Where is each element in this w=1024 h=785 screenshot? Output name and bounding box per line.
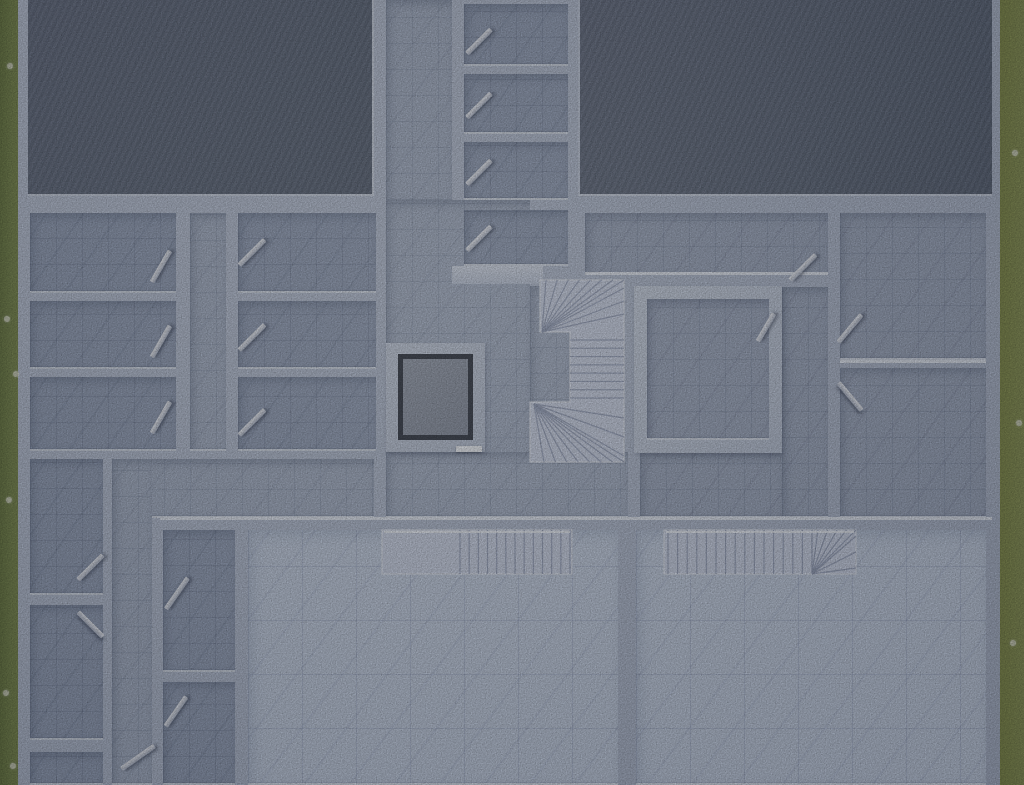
room-west-a2 [30, 301, 176, 369]
room-west-b2 [238, 301, 376, 369]
grass-pebble-7 [1016, 420, 1022, 426]
elevator-sill [456, 446, 482, 452]
corridor-west [190, 213, 226, 451]
room-small-2 [163, 682, 235, 785]
hall-east-south [640, 453, 782, 518]
grass-pebble-1 [4, 316, 10, 322]
room-sw-l1 [30, 459, 103, 595]
floor-plan-render [0, 0, 1024, 785]
room-west-a3 [30, 377, 176, 451]
long-wall-cap [160, 517, 992, 520]
elevator-car [403, 359, 468, 435]
stair-main-winder [530, 266, 640, 472]
grass-pebble-3 [6, 497, 12, 503]
storage-room-1 [464, 4, 568, 66]
room-sw-l3 [30, 752, 103, 785]
elevator-shaft [386, 343, 485, 452]
room-east-b [840, 213, 986, 360]
corridor-southwest [112, 459, 152, 785]
grass-pebble-8 [1010, 640, 1016, 646]
corridor-north [386, 0, 452, 202]
grass-pebble-4 [10, 763, 16, 769]
grass-strip-right [1000, 0, 1024, 785]
roof-slab-right [578, 0, 992, 196]
room-b-wall-cap [840, 360, 986, 363]
stair-unit-right [664, 528, 856, 574]
grass-pebble-6 [1012, 150, 1018, 156]
room-center-east [647, 299, 769, 440]
stair-unit-left [382, 528, 572, 576]
roof-slab-left [28, 0, 374, 196]
corridor-east [782, 287, 828, 518]
room-west-b1 [238, 213, 376, 293]
grass-pebble-5 [3, 690, 9, 696]
room-east-c [840, 368, 986, 518]
grass-strip-left [0, 0, 18, 785]
grass-pebble-0 [7, 63, 13, 69]
grass-pebble-2 [13, 371, 19, 377]
room-center-east-walls [634, 286, 782, 453]
